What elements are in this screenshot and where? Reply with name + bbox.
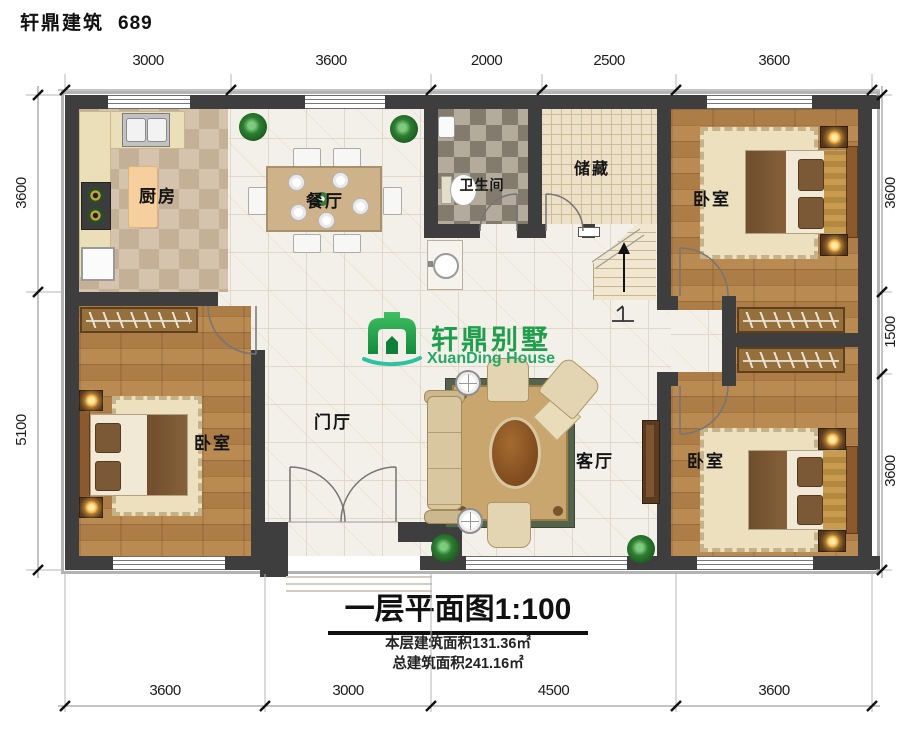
armchair <box>487 502 531 548</box>
dining-chair <box>383 187 402 215</box>
headboard <box>846 446 858 534</box>
coffee-table <box>489 417 541 489</box>
dim-right-1: 3600 <box>882 153 900 233</box>
drawing-title: 一层平面图1:100 <box>328 584 588 635</box>
brand-name: 轩鼎建筑 <box>20 13 104 34</box>
nightstand <box>818 428 846 450</box>
window <box>108 95 190 109</box>
dim-top-1: 3000 <box>65 52 231 70</box>
bedroom-hall-alcove-floor <box>671 310 722 372</box>
wall <box>858 95 872 570</box>
room-label-bedroom-tr: 卧室 <box>672 189 752 211</box>
bed <box>745 150 848 234</box>
window <box>113 556 225 570</box>
nightstand <box>79 497 103 518</box>
wall <box>528 95 542 238</box>
sofa <box>427 396 462 510</box>
room-label-storage: 储藏 <box>552 159 632 181</box>
plant <box>627 535 655 563</box>
nightstand <box>79 390 103 411</box>
window <box>697 556 813 570</box>
dining-chair <box>293 148 321 167</box>
bed <box>90 414 188 496</box>
plate <box>288 174 305 191</box>
vanity <box>427 240 463 290</box>
plant <box>390 115 418 143</box>
dim-bottom-2: 3000 <box>265 682 431 700</box>
floor-area-text: 本层建筑面积131.36㎡ <box>328 632 588 653</box>
plant <box>239 113 267 141</box>
window <box>466 556 627 570</box>
wall <box>65 292 218 306</box>
dining-chair <box>333 148 361 167</box>
bathroom-sink <box>438 116 455 138</box>
floor-lamp <box>455 370 481 396</box>
plate <box>318 212 335 229</box>
bed <box>748 450 848 530</box>
wardrobe <box>737 347 845 373</box>
kitchen-sink <box>122 113 170 147</box>
kitchen-stove <box>81 182 111 230</box>
dining-chair <box>293 234 321 253</box>
nightstand <box>820 234 848 256</box>
tv-stand <box>642 420 660 504</box>
dim-top-2: 3600 <box>231 52 431 70</box>
room-label-bathroom: 卫生间 <box>437 174 527 196</box>
logo-name-en: XuanDing House <box>424 350 558 368</box>
storage-door-threshold <box>578 227 600 237</box>
dim-left-1: 3600 <box>13 153 31 233</box>
headboard <box>79 410 90 500</box>
brand-title: 轩鼎建筑689 <box>20 8 153 35</box>
wall <box>424 224 480 238</box>
entry-steps <box>286 576 432 578</box>
dim-right-2: 1500 <box>882 292 900 372</box>
window <box>707 95 812 109</box>
wall <box>424 95 438 238</box>
dim-left-2: 5100 <box>13 390 31 470</box>
room-label-foyer: 门厅 <box>293 412 373 434</box>
wardrobe <box>737 307 845 333</box>
dim-top-3: 2000 <box>431 52 542 70</box>
room-label-bedroom-br: 卧室 <box>666 451 746 473</box>
dim-top-5: 3600 <box>676 52 872 70</box>
wall <box>657 296 678 310</box>
window <box>305 95 385 109</box>
wall <box>730 333 858 347</box>
wall <box>657 372 678 386</box>
wall <box>251 350 265 556</box>
room-label-living: 客厅 <box>555 451 635 473</box>
dim-bottom-4: 3600 <box>676 682 872 700</box>
wall <box>728 372 736 386</box>
floor-lamp <box>457 508 483 534</box>
room-label-dining: 餐厅 <box>285 191 365 213</box>
wall <box>657 95 671 296</box>
wall <box>65 95 79 570</box>
nightstand <box>820 126 848 148</box>
plant <box>431 534 459 562</box>
dining-chair <box>248 187 267 215</box>
wardrobe <box>80 307 198 333</box>
logo-icon <box>360 308 424 370</box>
dim-top-4: 2500 <box>542 52 676 70</box>
headboard <box>846 146 858 238</box>
dim-bottom-3: 4500 <box>431 682 676 700</box>
room-label-bedroom-bl: 卧室 <box>173 433 253 455</box>
wall <box>517 224 546 238</box>
plate <box>332 172 349 189</box>
plan-number: 689 <box>118 13 153 34</box>
kitchen-fridge <box>81 247 115 281</box>
dining-chair <box>333 234 361 253</box>
dim-right-3: 3600 <box>882 431 900 511</box>
room-label-kitchen: 厨房 <box>118 186 198 208</box>
nightstand <box>818 530 846 552</box>
total-area-text: 总建筑面积241.16㎡ <box>328 652 588 673</box>
dim-bottom-1: 3600 <box>65 682 265 700</box>
